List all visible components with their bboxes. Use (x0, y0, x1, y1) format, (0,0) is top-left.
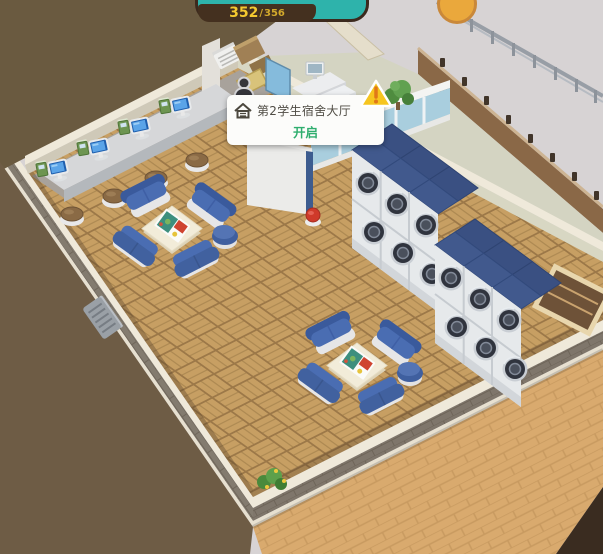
counter-current: 352 (229, 6, 258, 20)
arcade-box[interactable] (77, 139, 89, 156)
room-name: 第2学生宿舍大厅 (257, 102, 351, 119)
isometric-scene (0, 0, 603, 554)
red-stool[interactable] (305, 208, 321, 227)
arcade-box[interactable] (159, 97, 171, 114)
house-icon (234, 103, 252, 119)
room-action[interactable]: 开启 (227, 122, 384, 141)
stool[interactable] (60, 207, 84, 226)
arcade-box[interactable] (118, 118, 130, 135)
counter-separator: / (259, 9, 263, 19)
student-counter: 352 / 356 (198, 4, 316, 22)
game-viewport: 352 / 356 第2学生宿舍大厅 开启 (0, 0, 603, 554)
room-tooltip[interactable]: 第2学生宿舍大厅 开启 (227, 95, 384, 145)
warning-triangle-icon (359, 78, 393, 108)
arcade-box[interactable] (36, 160, 48, 177)
stool[interactable] (185, 153, 209, 172)
counter-max: 356 (264, 9, 285, 19)
